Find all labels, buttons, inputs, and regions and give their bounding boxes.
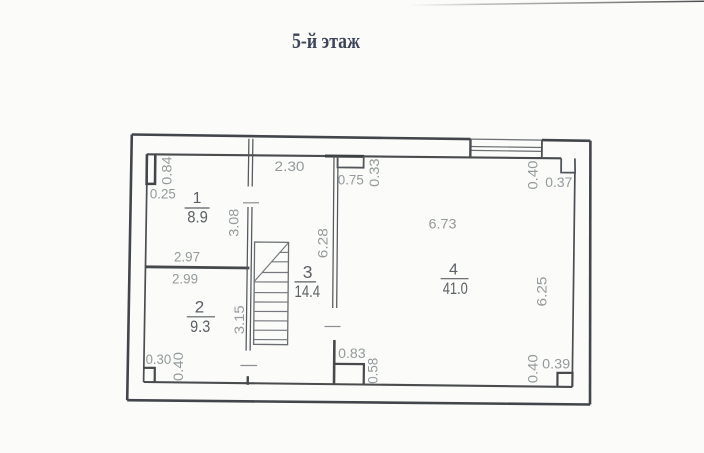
svg-text:0.40: 0.40 [526,160,541,189]
svg-text:0.84: 0.84 [159,156,174,185]
svg-text:3.15: 3.15 [232,305,247,334]
svg-text:0.40: 0.40 [525,354,540,383]
svg-text:8.9: 8.9 [187,209,208,227]
svg-text:2.97: 2.97 [174,250,200,265]
svg-text:3: 3 [303,262,313,282]
svg-text:14.4: 14.4 [295,283,321,301]
svg-text:0.58: 0.58 [366,357,381,383]
svg-text:0.30: 0.30 [146,352,172,367]
svg-text:0.33: 0.33 [367,158,382,187]
svg-text:2.30: 2.30 [275,159,305,174]
svg-text:9.3: 9.3 [190,317,210,336]
svg-text:41.0: 41.0 [443,279,468,298]
svg-text:2: 2 [195,298,204,317]
svg-text:5-й этаж: 5-й этаж [292,28,360,53]
svg-text:0.75: 0.75 [338,173,364,188]
svg-text:0.39: 0.39 [542,357,570,372]
svg-text:0.40: 0.40 [171,352,186,381]
svg-text:0.25: 0.25 [150,186,176,201]
svg-text:6.25: 6.25 [535,276,550,306]
svg-text:3.08: 3.08 [226,208,241,236]
svg-text:4: 4 [449,261,458,278]
svg-text:1: 1 [193,190,202,207]
svg-text:6.73: 6.73 [429,217,457,232]
svg-text:0.37: 0.37 [545,175,572,190]
svg-text:6.28: 6.28 [315,228,330,258]
svg-text:2.99: 2.99 [172,272,198,287]
svg-text:0.83: 0.83 [338,346,366,361]
